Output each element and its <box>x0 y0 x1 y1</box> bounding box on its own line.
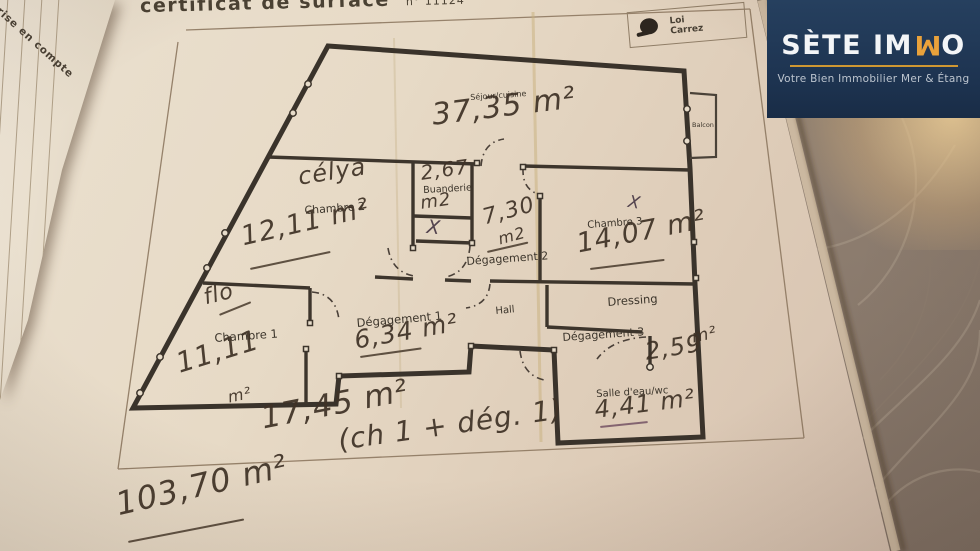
brand-name: SÈTE IMMO <box>767 32 980 59</box>
brand-tagline: Votre Bien Immobilier Mer & Étang <box>767 73 980 85</box>
photo-scene: certificat de surfacen° 11124 Loi Carrez… <box>0 0 980 551</box>
sete-immo-logo: SÈTE IMMO Votre Bien Immobilier Mer & Ét… <box>767 0 980 118</box>
flipped-m-letter: M <box>913 31 941 58</box>
logo-underline <box>790 65 958 67</box>
